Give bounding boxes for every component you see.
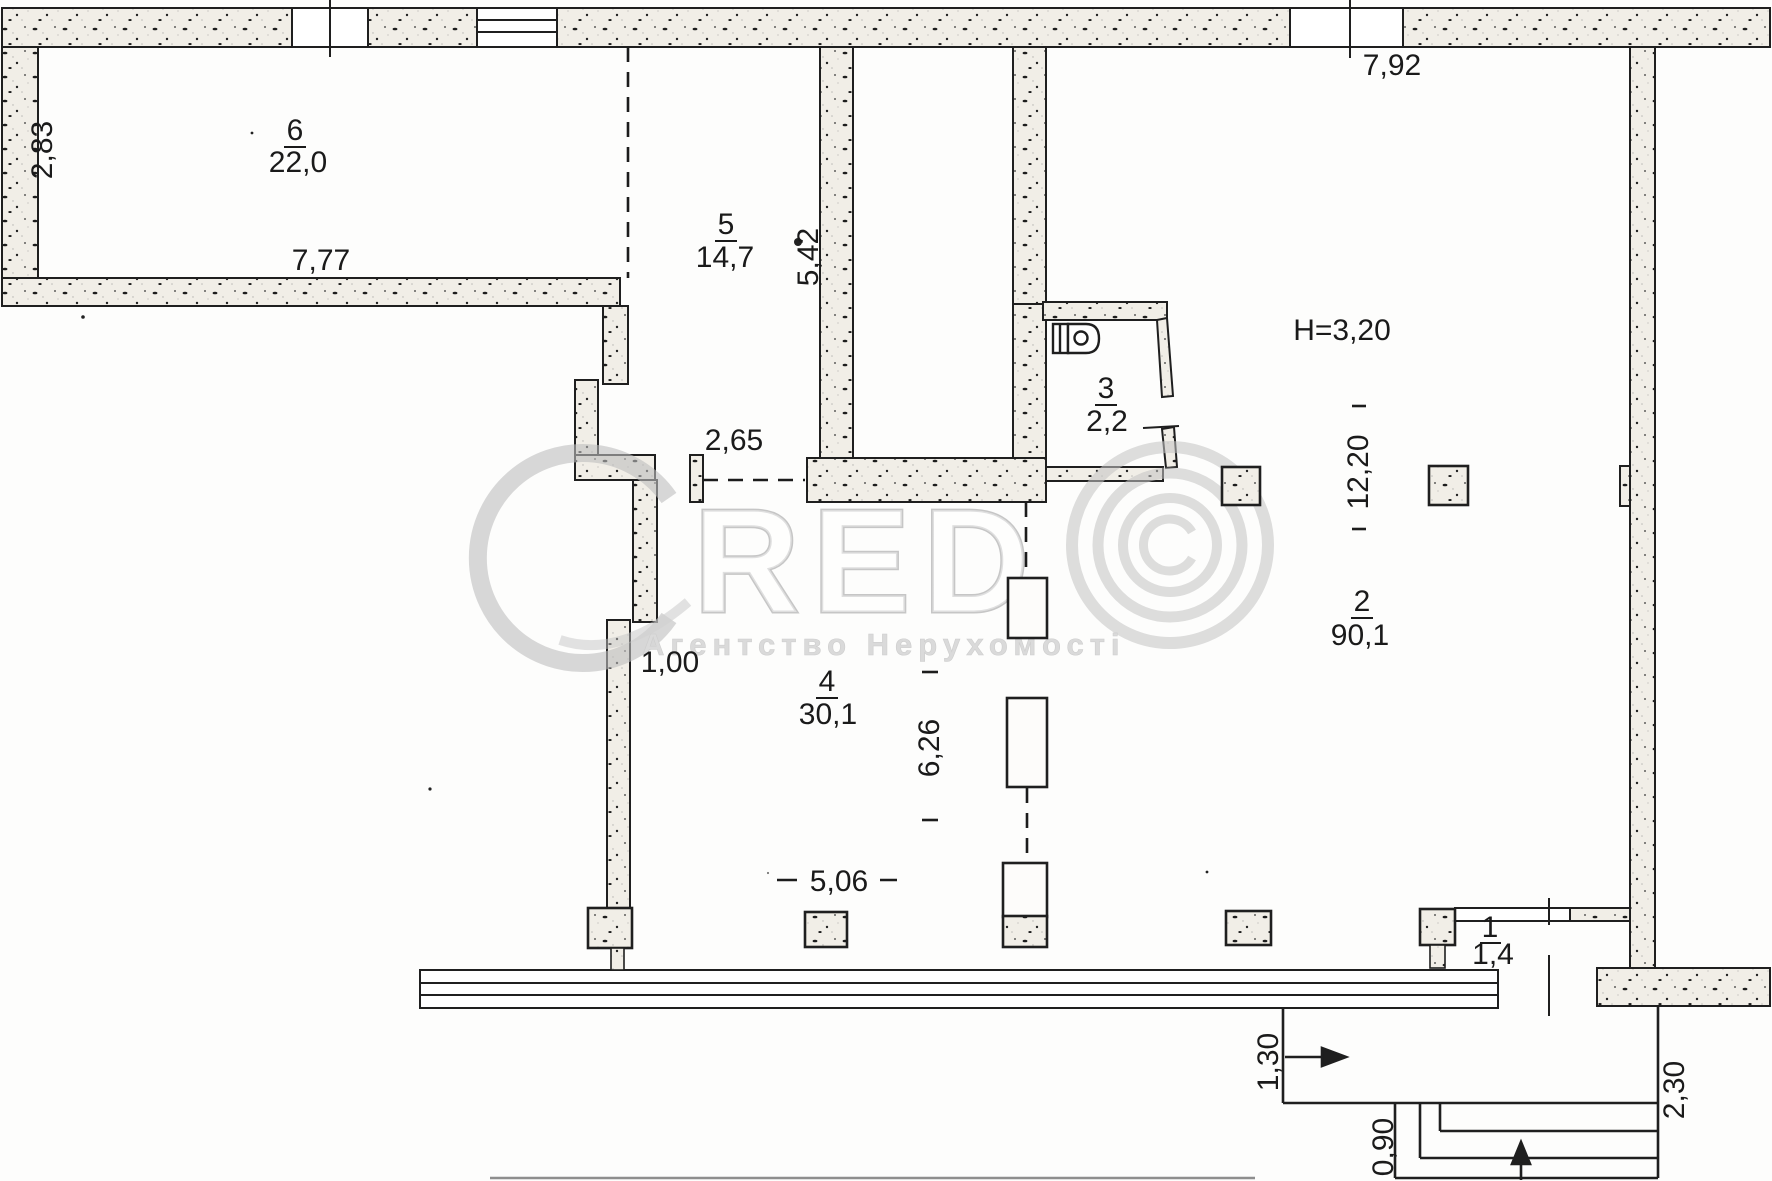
dim-2-83: 2,83 bbox=[26, 121, 59, 179]
porch-steps bbox=[490, 1007, 1658, 1180]
fixtures bbox=[1053, 324, 1099, 353]
dim-6-26: 6,26 bbox=[913, 719, 946, 777]
dim-1-30: 1,30 bbox=[1252, 1033, 1285, 1091]
wall-bottom-right bbox=[1597, 968, 1770, 1006]
wall-shaft-right bbox=[1013, 47, 1046, 304]
room5-number: 5 bbox=[718, 208, 735, 241]
column-stub bbox=[1430, 945, 1445, 968]
room3-number: 3 bbox=[1098, 372, 1115, 405]
column bbox=[1222, 467, 1260, 505]
room4-area: 30,1 bbox=[799, 698, 857, 731]
column bbox=[1226, 911, 1271, 945]
wall-wc-left bbox=[1013, 304, 1046, 470]
dim-5-06: 5,06 bbox=[810, 865, 868, 898]
window-band bbox=[420, 970, 1498, 1008]
column bbox=[1420, 909, 1455, 945]
entry-arrow-right bbox=[1285, 1048, 1346, 1066]
wall-top-seg1 bbox=[2, 8, 292, 47]
pilaster bbox=[1620, 466, 1630, 506]
room2-area: 90,1 bbox=[1331, 619, 1389, 652]
dim-ceiling-height: H=3,20 bbox=[1293, 314, 1391, 347]
room4-number: 4 bbox=[819, 665, 836, 698]
floorplan-drawing: RED Агентство Нерухомості bbox=[0, 0, 1772, 1181]
dim-1-00: 1,00 bbox=[641, 646, 699, 679]
wall-top-seg3 bbox=[557, 8, 1290, 47]
pillar bbox=[1007, 698, 1047, 787]
wall-wc-top bbox=[1043, 302, 1167, 320]
pillar bbox=[1003, 863, 1047, 917]
entry-arrow-up bbox=[1512, 1142, 1530, 1180]
dim-2-65: 2,65 bbox=[705, 424, 763, 457]
column bbox=[588, 908, 632, 948]
wall-right bbox=[1630, 47, 1655, 970]
room1-area: 1,4 bbox=[1472, 938, 1514, 971]
room2-number: 2 bbox=[1354, 585, 1371, 618]
dim-5-42: 5,42 bbox=[792, 228, 825, 286]
dim-7-92: 7,92 bbox=[1363, 49, 1421, 82]
watermark-red-text: RED bbox=[693, 479, 1041, 644]
room6-number: 6 bbox=[287, 114, 304, 147]
watermark-agency-text: Агентство Нерухомості bbox=[642, 627, 1126, 662]
dim-0-90: 0,90 bbox=[1367, 1118, 1400, 1176]
pillar bbox=[1008, 578, 1047, 638]
wall-top-seg2 bbox=[368, 8, 477, 47]
room5-area: 14,7 bbox=[696, 241, 754, 274]
column bbox=[1003, 916, 1047, 947]
column bbox=[1429, 466, 1468, 505]
wall-left-interior bbox=[603, 306, 628, 384]
column-stub bbox=[611, 948, 624, 970]
toilet-icon bbox=[1053, 324, 1099, 353]
dim-12-20: 12,20 bbox=[1342, 434, 1375, 509]
wall-wc-right-upper bbox=[1157, 318, 1173, 397]
floorplan-scan: RED Агентство Нерухомості bbox=[0, 0, 1772, 1181]
dim-7-77: 7,77 bbox=[292, 244, 350, 277]
column bbox=[805, 912, 847, 947]
wall-top-seg4 bbox=[1403, 8, 1770, 47]
room3-area: 2,2 bbox=[1086, 405, 1128, 438]
wall-vestibule-hatch bbox=[1570, 908, 1630, 921]
wall-room6-bottom bbox=[2, 278, 620, 306]
wall-left-interior bbox=[633, 480, 657, 622]
room6-area: 22,0 bbox=[269, 146, 327, 179]
dim-2-30: 2,30 bbox=[1658, 1061, 1691, 1119]
